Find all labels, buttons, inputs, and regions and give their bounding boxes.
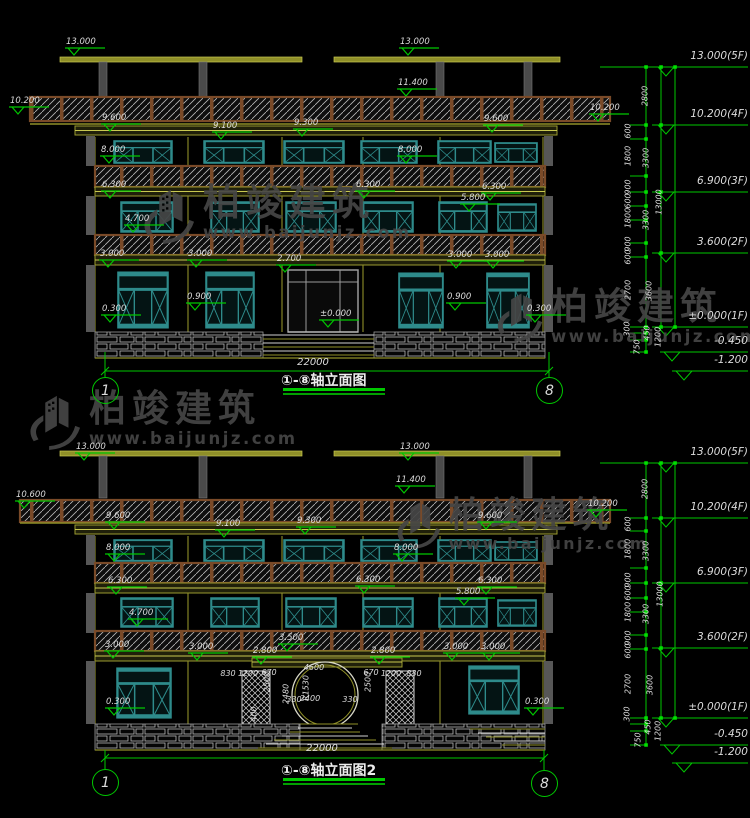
chain-dimension-label: 600 (624, 123, 633, 138)
elevation-label: 3.000 (479, 643, 521, 661)
chain-dimension-label: 900 (624, 179, 633, 194)
dimension-label-rotated: 2500 (263, 672, 272, 692)
chain-dimension-label: 3300 (642, 604, 651, 624)
elevation-label: 4.700 (127, 609, 169, 627)
watermark-url: www.baijunjz.com (203, 223, 412, 242)
axis-bubble-2-start: 1 (92, 769, 119, 796)
elevation-label: 9.100 (211, 122, 253, 140)
elevation-label: 13.000 (74, 443, 116, 461)
elevation-label: 11.400 (396, 79, 438, 97)
elevation-label: 8.000 (104, 544, 146, 562)
chain-dimension-label: 600 (624, 516, 633, 531)
elevation-label: 9.600 (476, 512, 518, 530)
drawing-title-1: ①-⑧轴立面图 (281, 370, 367, 390)
floor-level-label: 3.600(2F) (697, 236, 748, 248)
elevation-label: 13.000 (398, 443, 440, 461)
chain-dimension-label: 2800 (641, 86, 650, 106)
elevation-label: 0.300 (523, 698, 565, 716)
floor-level-label: 10.200(4F) (690, 501, 748, 513)
dimension-label-rotated: 2500 (364, 672, 373, 692)
floor-level-label: -0.450 (714, 728, 748, 740)
chain-dimension-label: 3600 (646, 675, 655, 695)
overall-width-dim-2: 22000 (306, 743, 338, 754)
elevation-label: 6.300 (354, 181, 396, 199)
chain-dimension-label: 750 (633, 339, 642, 354)
elevation-label: 3.500 (277, 634, 319, 652)
chain-dimension-label: 3300 (642, 148, 651, 168)
elevation-label: ±0.000 (318, 310, 360, 328)
floor-level-label: 10.200(4F) (690, 108, 748, 120)
chain-dimension-label: 300 (623, 706, 632, 721)
elevation-label: 10.600 (14, 491, 56, 509)
elevation-label: 0.900 (185, 293, 227, 311)
chain-dimension-label: 1800 (624, 602, 633, 622)
watermark-url: www.baijunjz.com (449, 534, 649, 552)
elevation-label: 13.000 (64, 38, 106, 56)
elevation-label: 10.200 (586, 500, 628, 518)
chain-dimension-label: 2700 (624, 674, 633, 694)
elevation-label: 10.200 (8, 97, 50, 115)
chain-dimension-label: 1800 (624, 539, 633, 559)
chain-dimension-label: 300 (623, 321, 632, 336)
chain-dimension-label: 13000 (655, 189, 664, 214)
axis-bubble-1-end: 8 (536, 377, 563, 404)
watermark-brand: 柏竣建筑 (89, 390, 298, 428)
chain-dimension-label: 600 (624, 249, 633, 264)
cad-canvas: 柏竣建筑 www.baijunjz.com 柏竣建筑 www.baijunjz.… (0, 0, 750, 818)
elevation-label: 4.700 (123, 215, 165, 233)
elevation-label: 3.000 (103, 641, 145, 659)
elevation-label: 3.000 (446, 251, 488, 269)
floor-level-label: -1.200 (714, 746, 748, 758)
elevation-label: 0.300 (104, 698, 146, 716)
chain-dimension-label: 2800 (641, 479, 650, 499)
elevation-label: 9.100 (214, 520, 256, 538)
floor-level-label: 3.600(2F) (697, 631, 748, 643)
chain-dimension-label: 1800 (624, 208, 633, 228)
elevation-label: 9.600 (104, 512, 146, 530)
elevation-label: 9.600 (482, 115, 524, 133)
elevation-label: 5.800 (459, 194, 501, 212)
floor-level-label: -1.200 (714, 354, 748, 366)
dimension-label: 4600 (304, 663, 324, 672)
chain-dimension-label: 1800 (624, 146, 633, 166)
elevation-label: 13.000 (398, 38, 440, 56)
elevation-label: 10.200 (588, 104, 630, 122)
dimension-label: 1200 (238, 669, 258, 678)
elevation-label: 2.800 (369, 647, 411, 665)
elevation-label: 6.300 (106, 577, 148, 595)
chain-dimension-label: 1200 (654, 327, 663, 347)
chain-dimension-label: 600 (624, 193, 633, 208)
elevation-label: 3.000 (98, 250, 140, 268)
dimension-label: 1200 (381, 669, 401, 678)
elevation-label: 6.300 (354, 576, 396, 594)
chain-dimension-label: 450 (644, 719, 653, 734)
elevation-label: 8.000 (392, 544, 434, 562)
dimension-label-rotated: 2480 (282, 684, 291, 704)
chain-dimension-label: 600 (624, 585, 633, 600)
axis-bubble-1-start: 1 (92, 377, 119, 404)
watermark-url: www.baijunjz.com (89, 429, 298, 448)
dimension-label: 830 (220, 669, 235, 678)
floor-level-label: -0.450 (714, 335, 748, 347)
chain-dimension-label: 1200 (654, 721, 663, 741)
overall-width-dim-1: 22000 (297, 357, 329, 368)
floor-level-label: 6.900(3F) (697, 566, 748, 578)
dimension-label: 330 (342, 695, 357, 704)
elevation-label: 8.000 (396, 146, 438, 164)
floor-level-label: ±0.000(1F) (688, 701, 748, 713)
elevation-label: 8.000 (99, 146, 141, 164)
floor-level-label: 13.000(5F) (690, 50, 748, 62)
chain-dimension-label: 600 (624, 643, 633, 658)
elevation-label: 3.000 (442, 643, 484, 661)
chain-dimension-label: 3300 (642, 210, 651, 230)
chain-dimension-label: 3300 (642, 541, 651, 561)
dimension-label-rotated: 400 (250, 706, 259, 721)
elevation-label: 11.400 (394, 476, 436, 494)
floor-level-label: 6.900(3F) (697, 175, 748, 187)
watermark: 柏竣建筑 www.baijunjz.com (24, 390, 298, 452)
dimension-label-rotated: R1530 (302, 675, 311, 701)
chain-dimension-label: 3600 (645, 281, 654, 301)
elevation-label: 3.000 (483, 251, 525, 269)
dimension-label: 830 (406, 669, 421, 678)
elevation-label: 5.800 (454, 588, 496, 606)
elevation-label: 0.900 (445, 293, 487, 311)
chain-dimension-label: 13000 (656, 581, 665, 606)
floor-level-label: 13.000(5F) (690, 446, 748, 458)
axis-bubble-2-end: 8 (531, 770, 558, 797)
elevation-label: 9.300 (295, 517, 337, 535)
elevation-label: 3.000 (186, 250, 228, 268)
elevation-label: 9.300 (292, 119, 334, 137)
chain-dimension-label: 2700 (624, 280, 633, 300)
elevation-label: 0.300 (100, 305, 142, 323)
drawing-title-2: ①-⑧轴立面图2 (281, 760, 376, 780)
chain-dimension-label: 750 (634, 732, 643, 747)
elevation-label: 3.000 (187, 643, 229, 661)
chain-dimension-label: 450 (643, 325, 652, 340)
floor-level-label: ±0.000(1F) (688, 310, 748, 322)
elevation-label: 9.600 (100, 114, 142, 132)
elevation-label: 0.300 (525, 305, 567, 323)
elevation-label: 2.700 (275, 255, 317, 273)
elevation-label: 6.300 (100, 181, 142, 199)
